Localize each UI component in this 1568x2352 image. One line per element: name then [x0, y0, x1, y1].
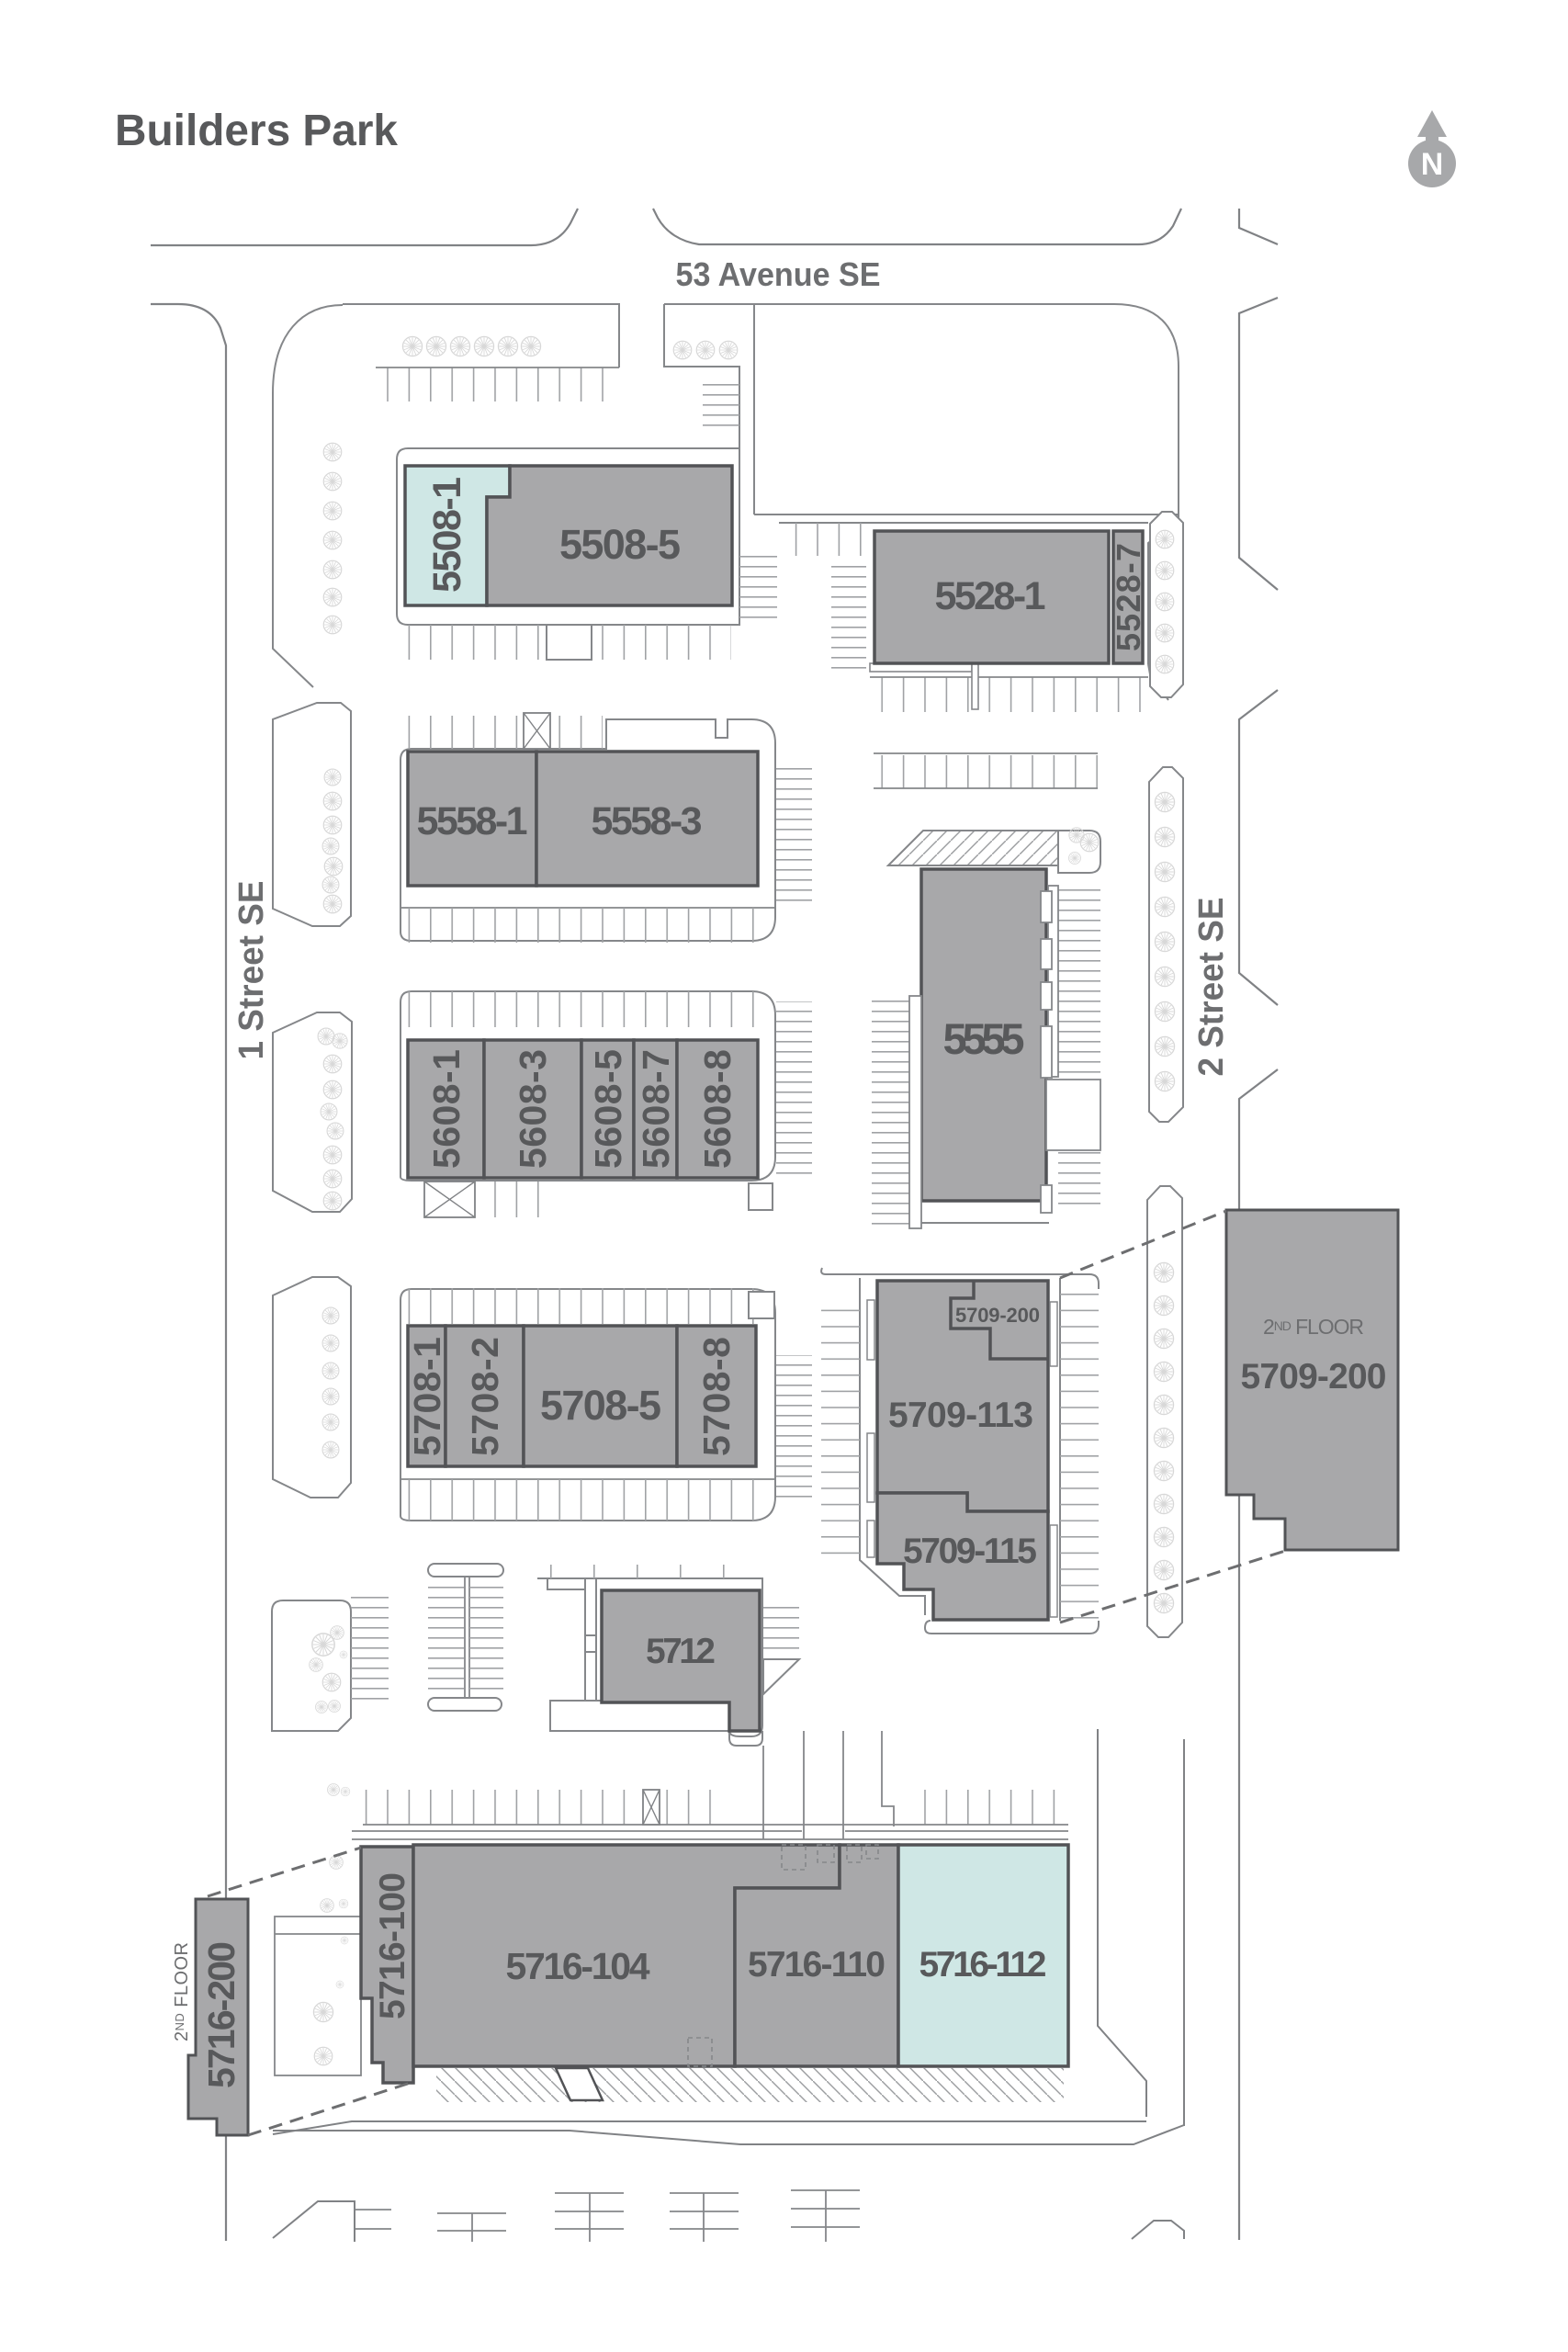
svg-text:2 Street SE: 2 Street SE: [1192, 898, 1231, 1077]
svg-text:53 Avenue SE: 53 Avenue SE: [676, 255, 881, 293]
svg-text:5716-100: 5716-100: [373, 1872, 412, 2019]
svg-text:5558-1: 5558-1: [417, 799, 528, 843]
svg-text:5709-115: 5709-115: [903, 1532, 1037, 1571]
svg-text:5555: 5555: [943, 1014, 1025, 1063]
svg-text:5608-3: 5608-3: [512, 1049, 554, 1169]
svg-text:5608-8: 5608-8: [696, 1049, 739, 1169]
svg-text:5608-7: 5608-7: [635, 1049, 677, 1169]
svg-text:5716-112: 5716-112: [919, 1945, 1047, 1984]
svg-text:1 Street SE: 1 Street SE: [232, 881, 271, 1060]
svg-text:5709-200: 5709-200: [955, 1304, 1040, 1327]
svg-text:5528-7: 5528-7: [1110, 543, 1147, 651]
svg-text:5708-1: 5708-1: [406, 1337, 448, 1456]
svg-text:5508-1: 5508-1: [425, 477, 469, 593]
svg-text:5708-2: 5708-2: [464, 1337, 506, 1456]
svg-text:Builders Park: Builders Park: [115, 107, 398, 155]
svg-text:5608-5: 5608-5: [587, 1049, 629, 1169]
svg-text:5708-8: 5708-8: [695, 1337, 738, 1456]
svg-text:5558-3: 5558-3: [592, 799, 703, 843]
svg-text:5508-5: 5508-5: [559, 521, 681, 568]
svg-text:N: N: [1421, 147, 1444, 182]
svg-text:5716-110: 5716-110: [748, 1945, 886, 1984]
svg-text:5608-1: 5608-1: [425, 1049, 468, 1169]
svg-text:5709-200: 5709-200: [1241, 1357, 1387, 1396]
svg-text:5528-1: 5528-1: [935, 574, 1046, 618]
svg-text:5708-5: 5708-5: [540, 1382, 661, 1429]
svg-text:5716-104: 5716-104: [506, 1945, 650, 1987]
svg-text:5712: 5712: [646, 1632, 716, 1671]
svg-text:5709-113: 5709-113: [888, 1396, 1033, 1435]
svg-text:5716-200: 5716-200: [200, 1941, 243, 2088]
